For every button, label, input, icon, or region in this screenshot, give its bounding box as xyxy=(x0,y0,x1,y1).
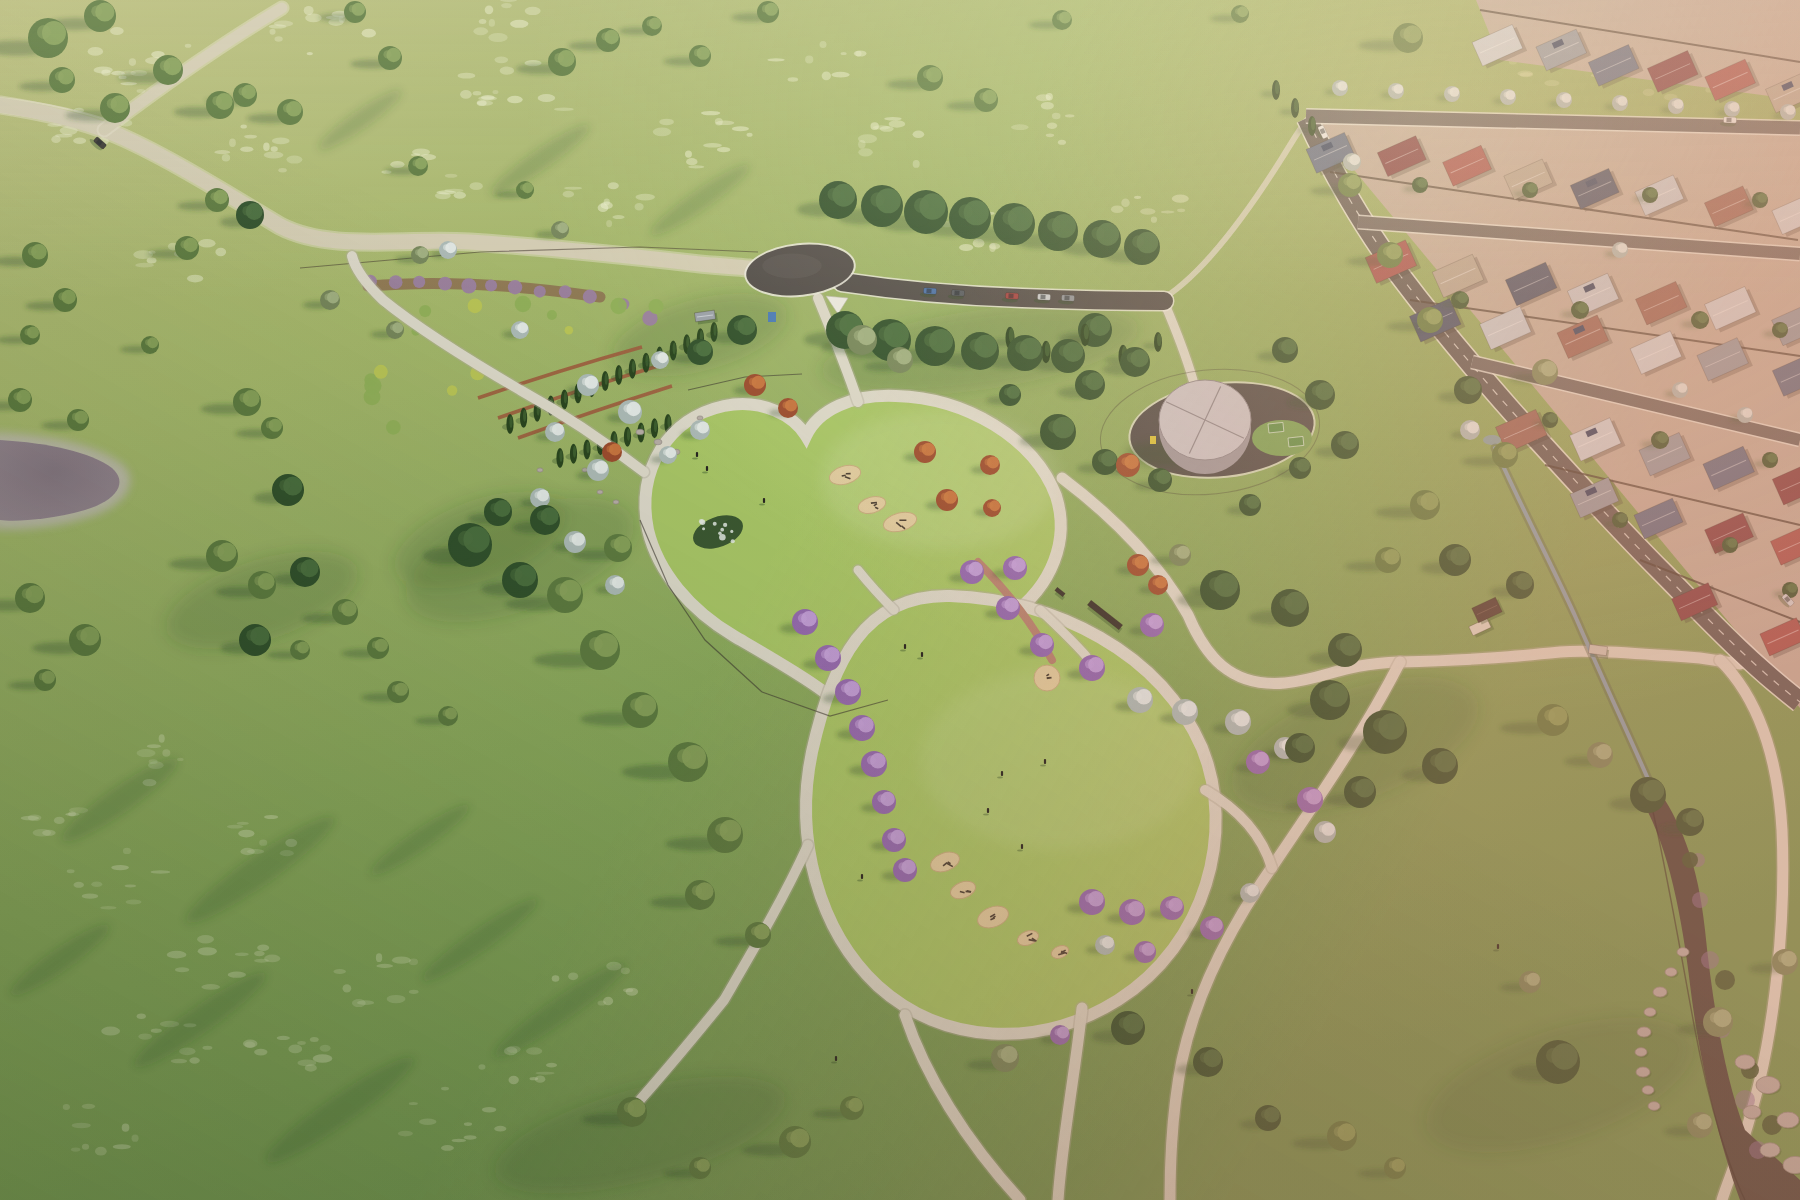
scene-svg xyxy=(0,0,1800,1200)
haze xyxy=(0,0,1800,1200)
aerial-park-render xyxy=(0,0,1800,1200)
